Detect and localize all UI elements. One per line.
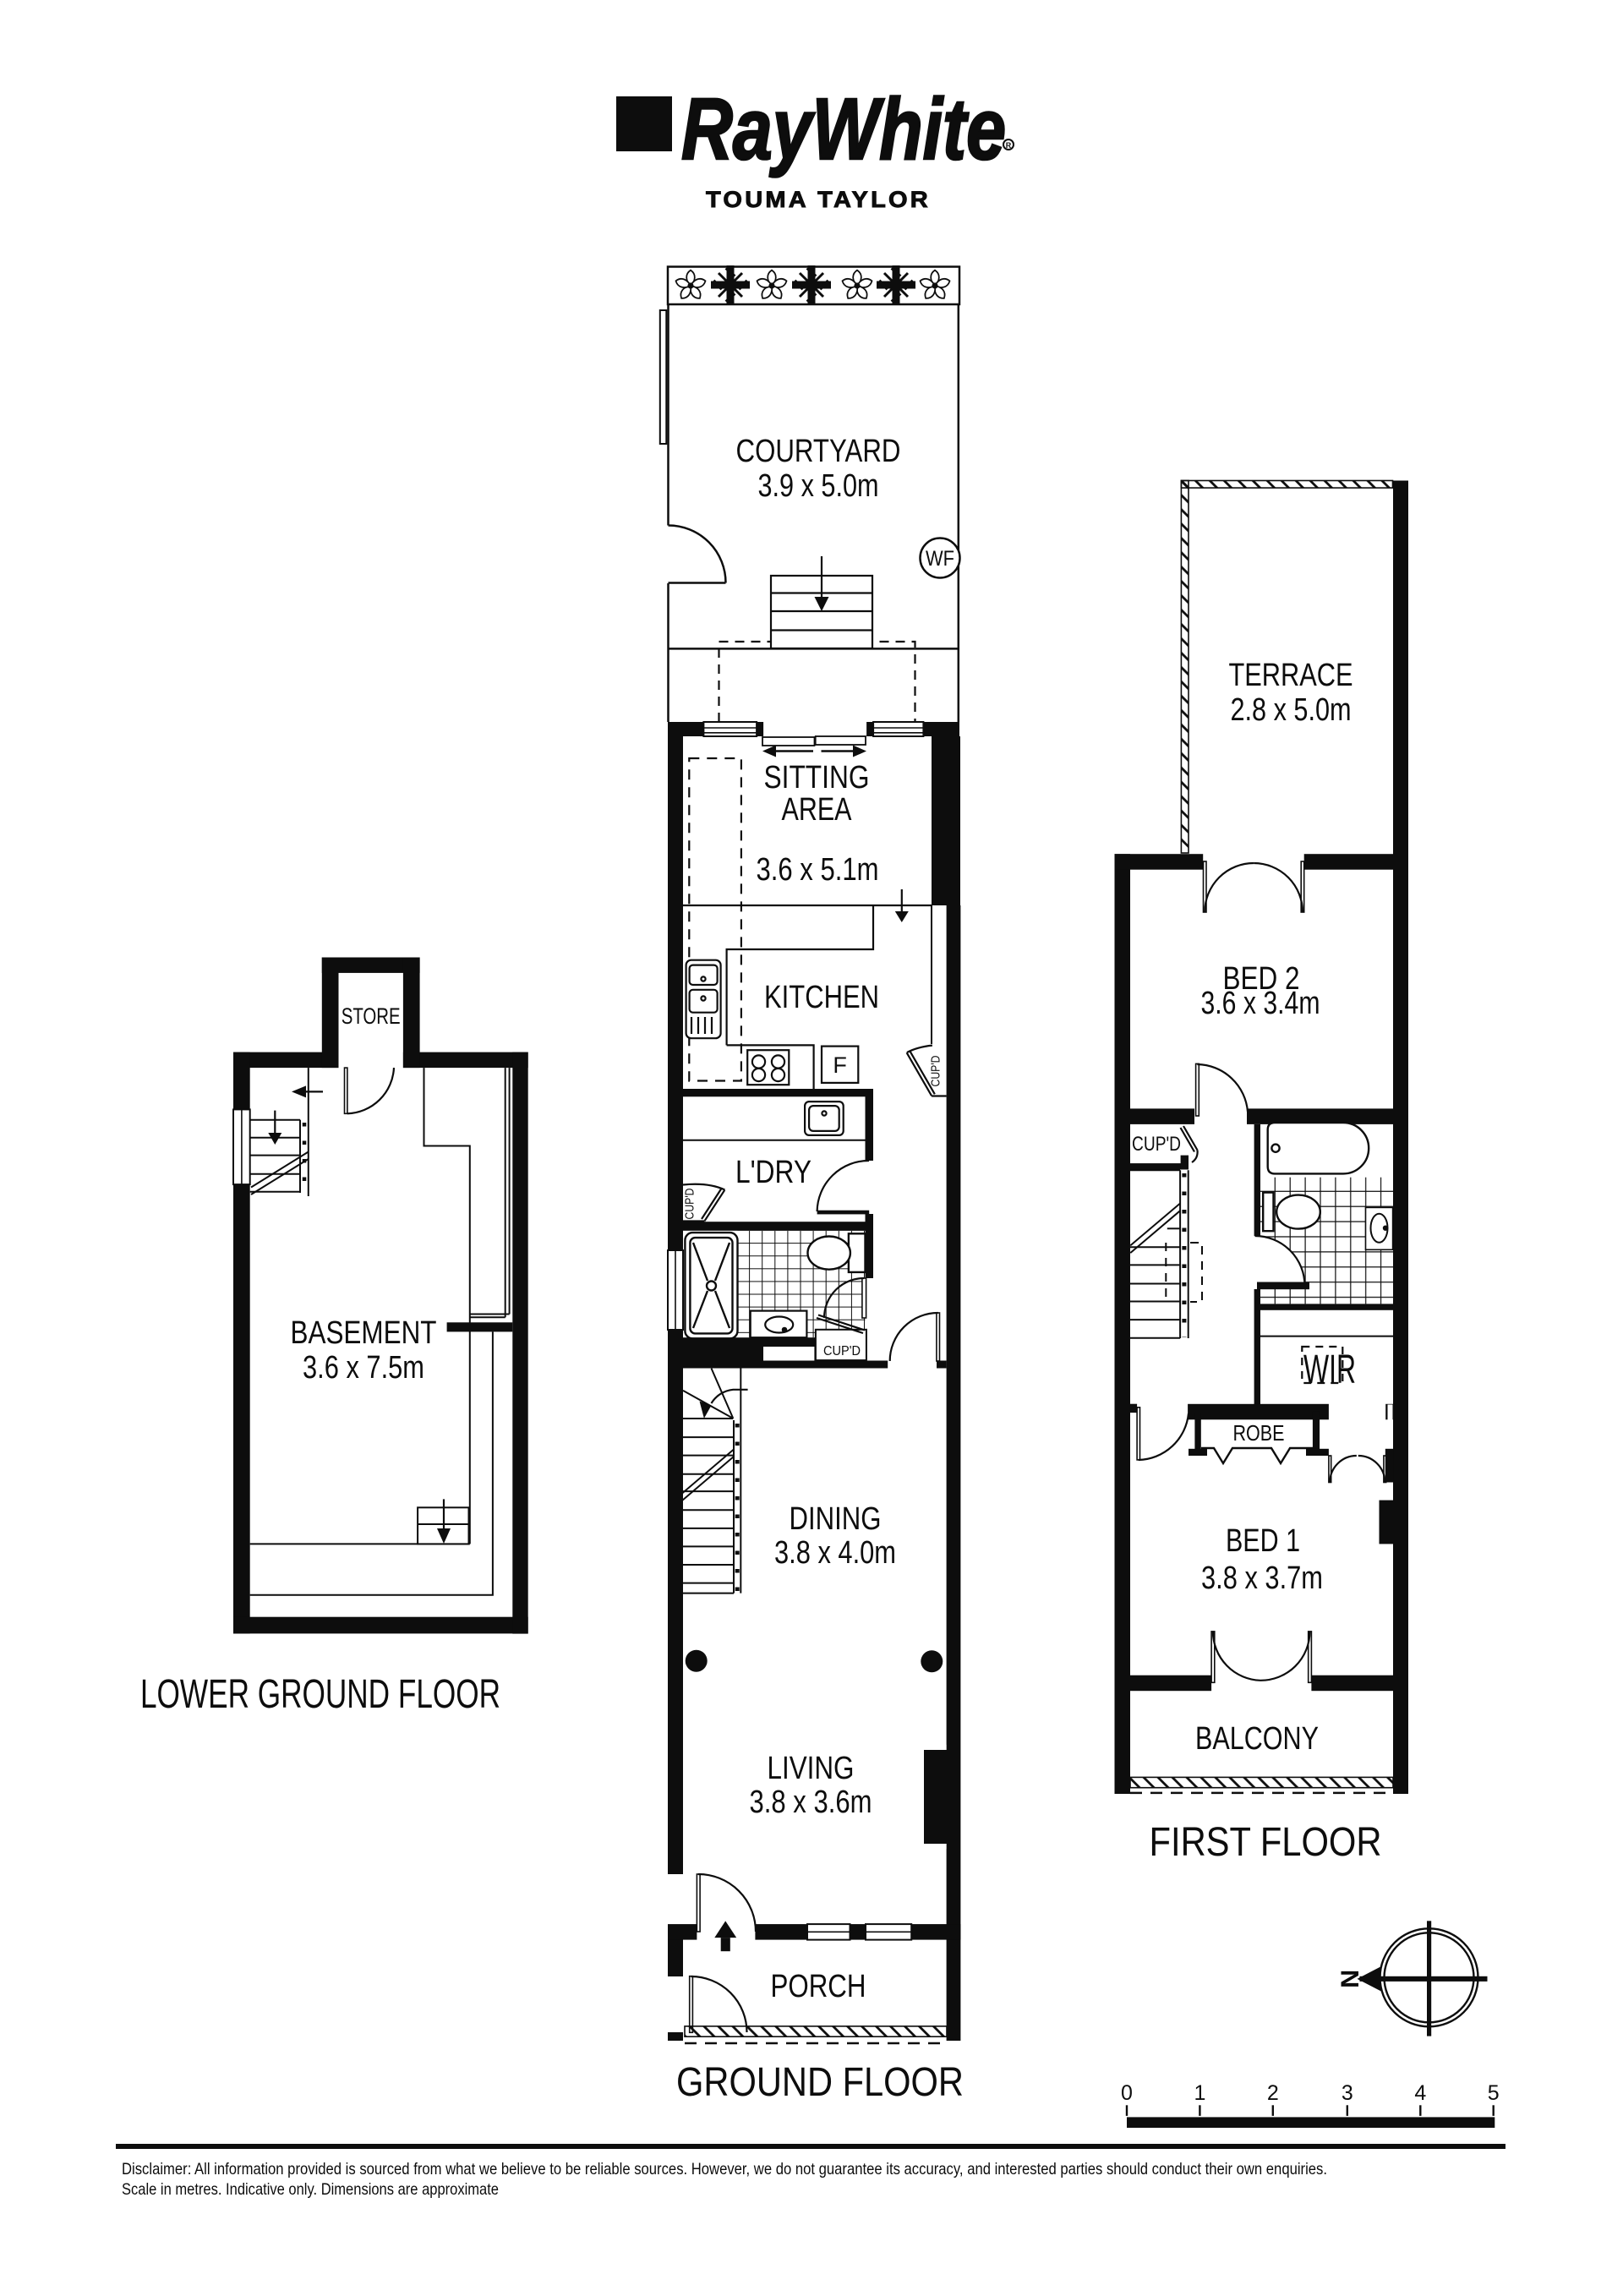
svg-text:STORE: STORE xyxy=(342,1003,401,1029)
svg-text:CUP'D: CUP'D xyxy=(930,1056,943,1087)
svg-text:CUP'D: CUP'D xyxy=(1132,1133,1181,1156)
svg-text:3.8 x 4.0m: 3.8 x 4.0m xyxy=(774,1535,896,1571)
svg-text:3.9 x 5.0m: 3.9 x 5.0m xyxy=(758,468,879,504)
svg-text:TOUMA TAYLOR: TOUMA TAYLOR xyxy=(706,187,931,212)
svg-text:N: N xyxy=(1335,1970,1363,1988)
svg-text:Scale in metres. Indicative on: Scale in metres. Indicative only. Dimens… xyxy=(122,2180,499,2199)
svg-text:RayWhite: RayWhite xyxy=(681,80,1006,178)
svg-text:2.8 x 5.0m: 2.8 x 5.0m xyxy=(1231,692,1352,728)
svg-text:3.6 x 7.5m: 3.6 x 7.5m xyxy=(303,1350,424,1386)
svg-text:3.8 x 3.7m: 3.8 x 3.7m xyxy=(1201,1561,1323,1596)
svg-text:COURTYARD: COURTYARD xyxy=(736,434,901,469)
svg-text:WIR: WIR xyxy=(1303,1348,1356,1392)
svg-text:LIVING: LIVING xyxy=(768,1751,855,1786)
svg-text:DINING: DINING xyxy=(790,1501,882,1537)
svg-text:TERRACE: TERRACE xyxy=(1229,658,1353,693)
svg-text:PORCH: PORCH xyxy=(771,1969,866,2004)
svg-text:BALCONY: BALCONY xyxy=(1195,1721,1319,1757)
svg-text:CUP'D: CUP'D xyxy=(823,1344,861,1358)
svg-text:L'DRY: L'DRY xyxy=(735,1155,811,1190)
svg-text:3: 3 xyxy=(1342,2081,1353,2105)
svg-text:FIRST FLOOR: FIRST FLOOR xyxy=(1150,1820,1382,1865)
svg-text:WF: WF xyxy=(926,547,954,571)
svg-text:4: 4 xyxy=(1414,2081,1426,2105)
svg-text:R: R xyxy=(1006,141,1012,150)
svg-text:3.6 x 5.1m: 3.6 x 5.1m xyxy=(757,852,879,888)
svg-text:GROUND FLOOR: GROUND FLOOR xyxy=(676,2060,964,2105)
svg-text:LOWER GROUND FLOOR: LOWER GROUND FLOOR xyxy=(140,1672,500,1717)
svg-text:3.8 x 3.6m: 3.8 x 3.6m xyxy=(750,1785,872,1820)
svg-text:BASEMENT: BASEMENT xyxy=(291,1315,437,1351)
svg-text:CUP'D: CUP'D xyxy=(684,1189,697,1220)
svg-text:0: 0 xyxy=(1121,2081,1133,2105)
svg-text:AREA: AREA xyxy=(782,792,853,828)
svg-text:1: 1 xyxy=(1194,2081,1205,2105)
svg-text:2: 2 xyxy=(1267,2081,1279,2105)
svg-text:ROBE: ROBE xyxy=(1233,1420,1285,1446)
svg-text:BED 1: BED 1 xyxy=(1226,1523,1300,1559)
svg-text:KITCHEN: KITCHEN xyxy=(764,980,879,1015)
svg-text:SITTING: SITTING xyxy=(764,760,870,795)
svg-text:F: F xyxy=(833,1052,847,1078)
svg-text:3.6 x 3.4m: 3.6 x 3.4m xyxy=(1201,986,1320,1021)
svg-text:5: 5 xyxy=(1488,2081,1500,2105)
svg-text:Disclaimer: All information pr: Disclaimer: All information provided is … xyxy=(122,2160,1327,2178)
